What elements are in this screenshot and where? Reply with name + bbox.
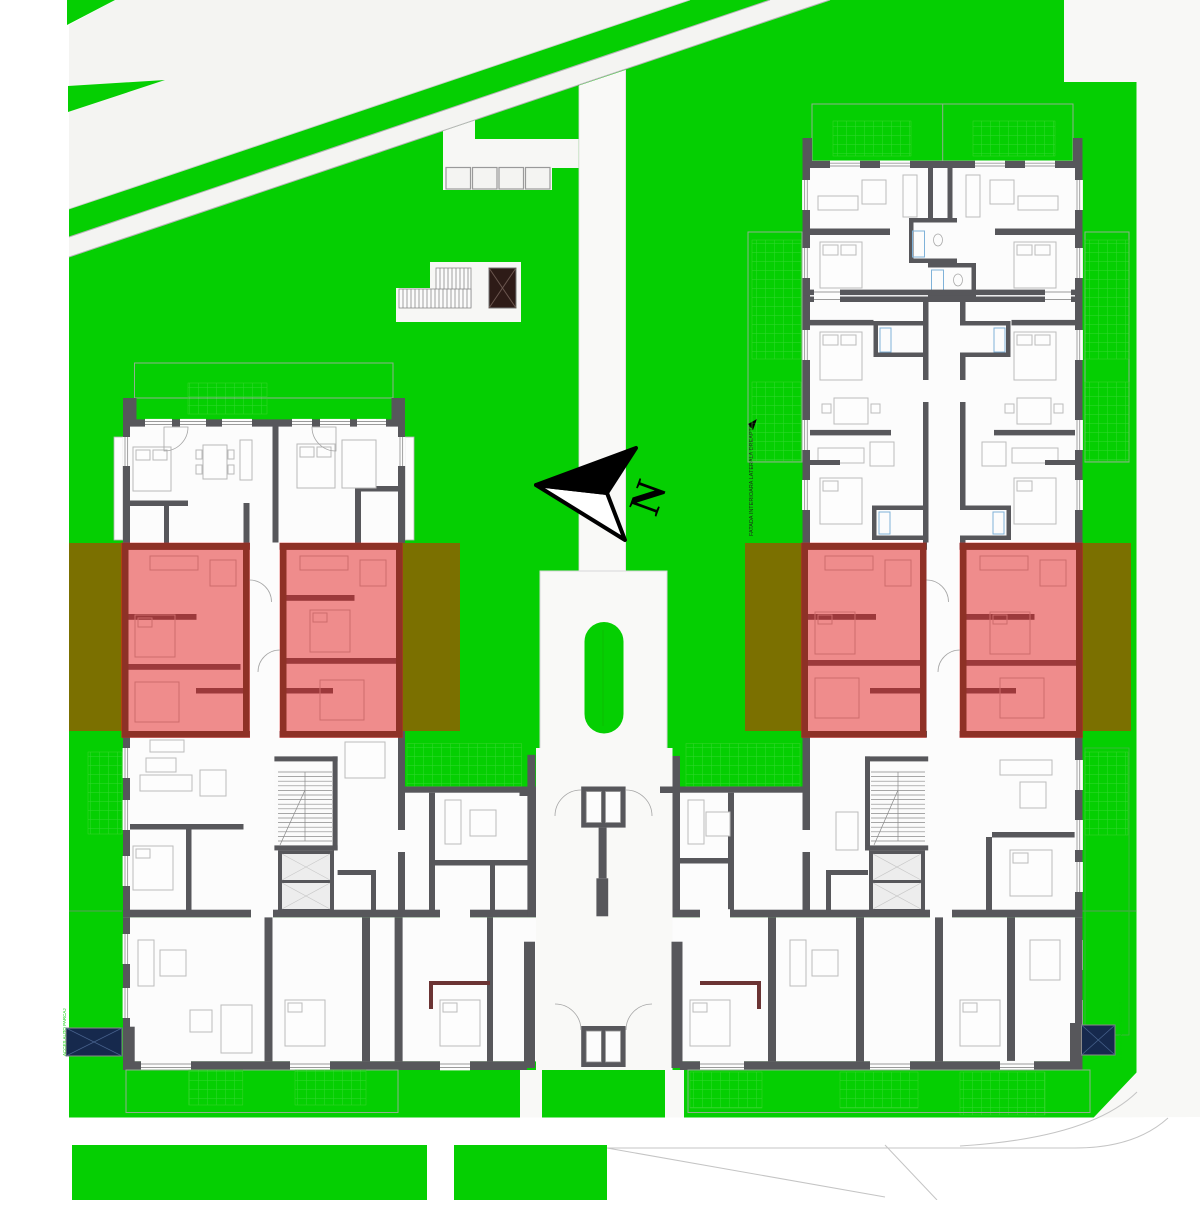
svg-text:ACCES AUTO PARCAJ: ACCES AUTO PARCAJ	[62, 1008, 67, 1056]
svg-text:B 10 PERSAU PARCAJ 01 B: B 10 PERSAU PARCAJ 01 B	[1118, 1002, 1123, 1060]
